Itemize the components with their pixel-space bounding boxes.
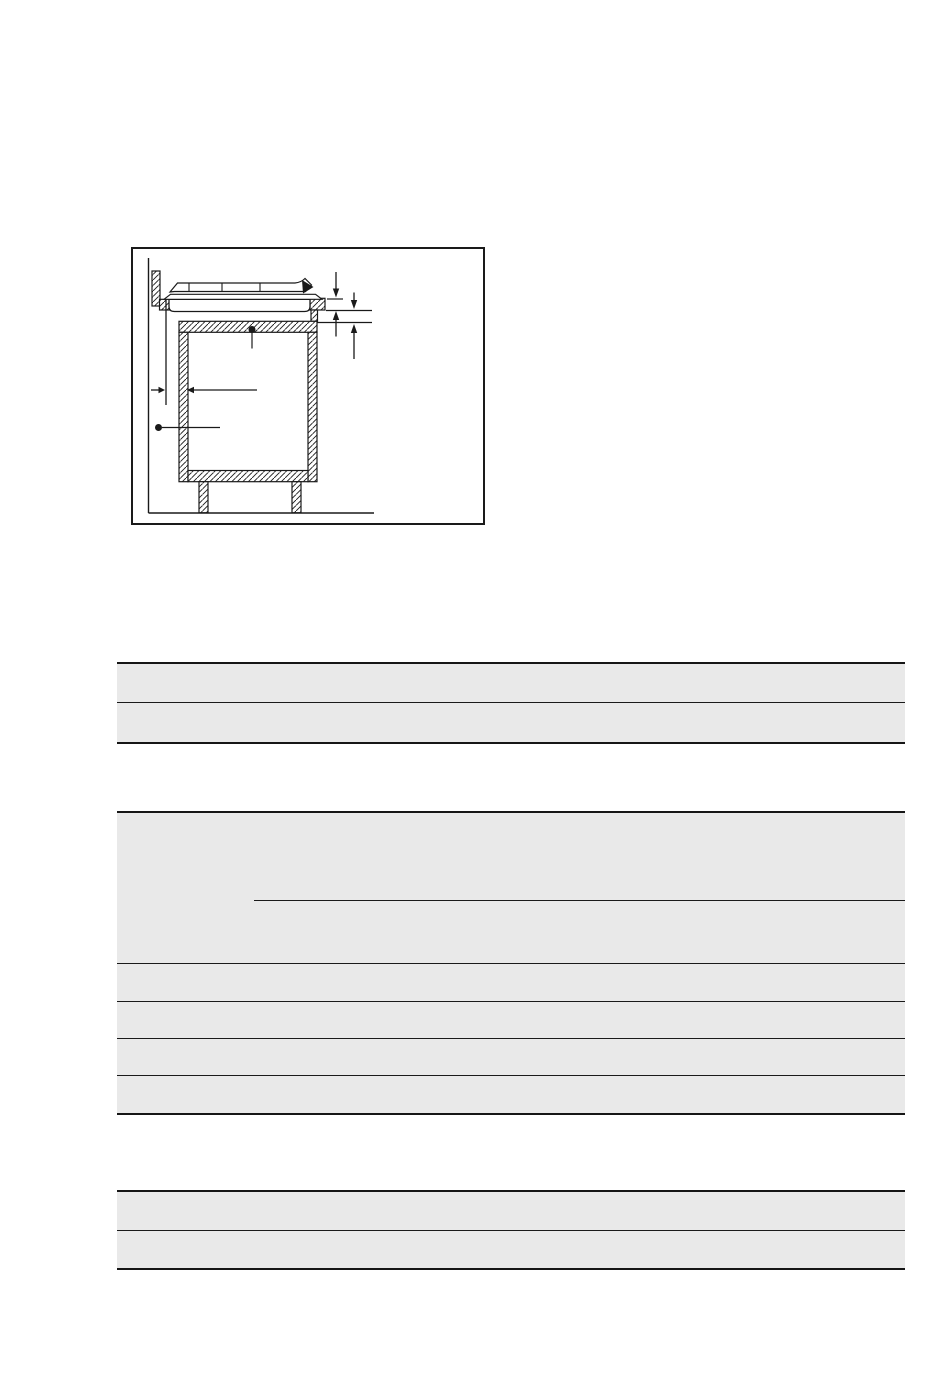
- table-row: [117, 1231, 905, 1268]
- table-partial-divider: [254, 900, 905, 901]
- table-row: [117, 813, 905, 964]
- document-page: [0, 0, 950, 1374]
- table-row: [117, 664, 905, 703]
- spec-table-top: [117, 662, 905, 744]
- table-row: [117, 1192, 905, 1231]
- spec-table-middle: [117, 811, 905, 1115]
- cabinet-left-wall: [179, 332, 188, 481]
- spec-table-bottom: [117, 1190, 905, 1270]
- cabinet-right-wall: [308, 332, 317, 481]
- table-row: [117, 703, 905, 743]
- wall-section-hatch: [152, 271, 160, 306]
- table-row: [117, 1076, 905, 1113]
- hob-tub: [169, 299, 310, 311]
- table-row: [117, 1039, 905, 1076]
- cabinet-top-panel: [179, 321, 317, 332]
- cabinet-leg-right: [292, 482, 301, 513]
- worktop-right-spacer: [311, 310, 318, 321]
- cabinet-leg-left: [199, 482, 208, 513]
- installation-diagram: [131, 247, 485, 525]
- table-row: [117, 1002, 905, 1039]
- hob-rim: [164, 294, 322, 299]
- cabinet-bottom-panel: [188, 471, 308, 482]
- worktop-right: [310, 298, 325, 310]
- table-row: [117, 964, 905, 1002]
